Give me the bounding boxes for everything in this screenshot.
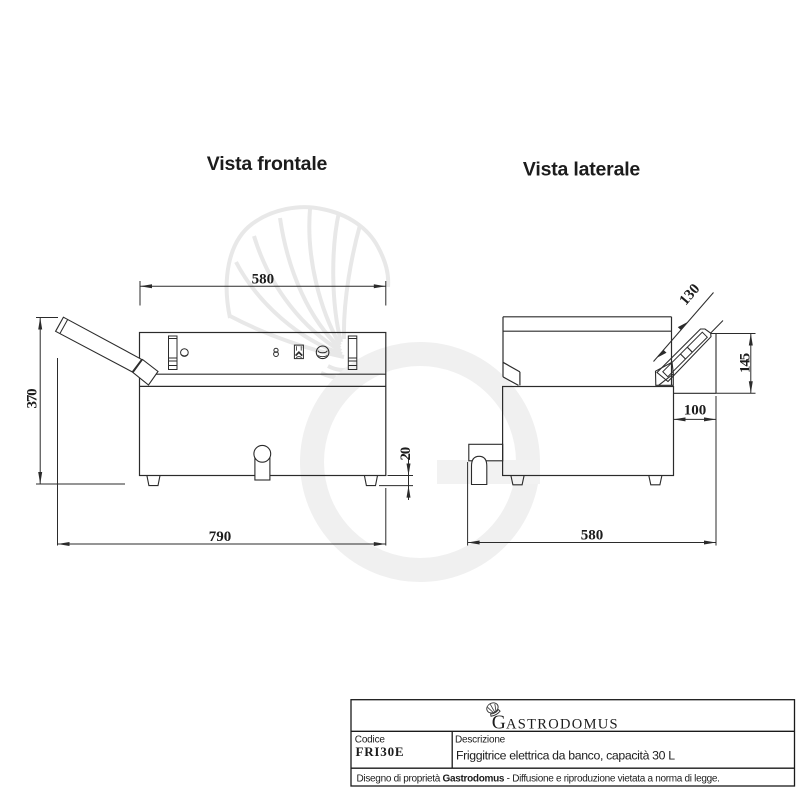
svg-text:G: G <box>492 712 506 733</box>
svg-text:ASTRODOMUS: ASTRODOMUS <box>506 716 619 732</box>
svg-text:Disegno di proprietà Gastrodom: Disegno di proprietà Gastrodomus - Diffu… <box>357 773 720 784</box>
svg-text:580: 580 <box>581 528 604 544</box>
svg-text:Vista laterale: Vista laterale <box>523 159 641 181</box>
svg-text:370: 370 <box>25 389 41 409</box>
svg-text:790: 790 <box>209 529 232 545</box>
svg-text:Descrizione: Descrizione <box>455 734 506 745</box>
svg-text:145: 145 <box>738 353 754 373</box>
svg-text:Vista frontale: Vista frontale <box>207 153 328 175</box>
svg-text:FRI30E: FRI30E <box>356 744 405 759</box>
svg-text:580: 580 <box>252 271 275 287</box>
svg-text:Friggitrice elettrica da banco: Friggitrice elettrica da banco, capacità… <box>456 748 675 762</box>
svg-text:100: 100 <box>684 403 707 419</box>
svg-text:20: 20 <box>398 447 414 460</box>
